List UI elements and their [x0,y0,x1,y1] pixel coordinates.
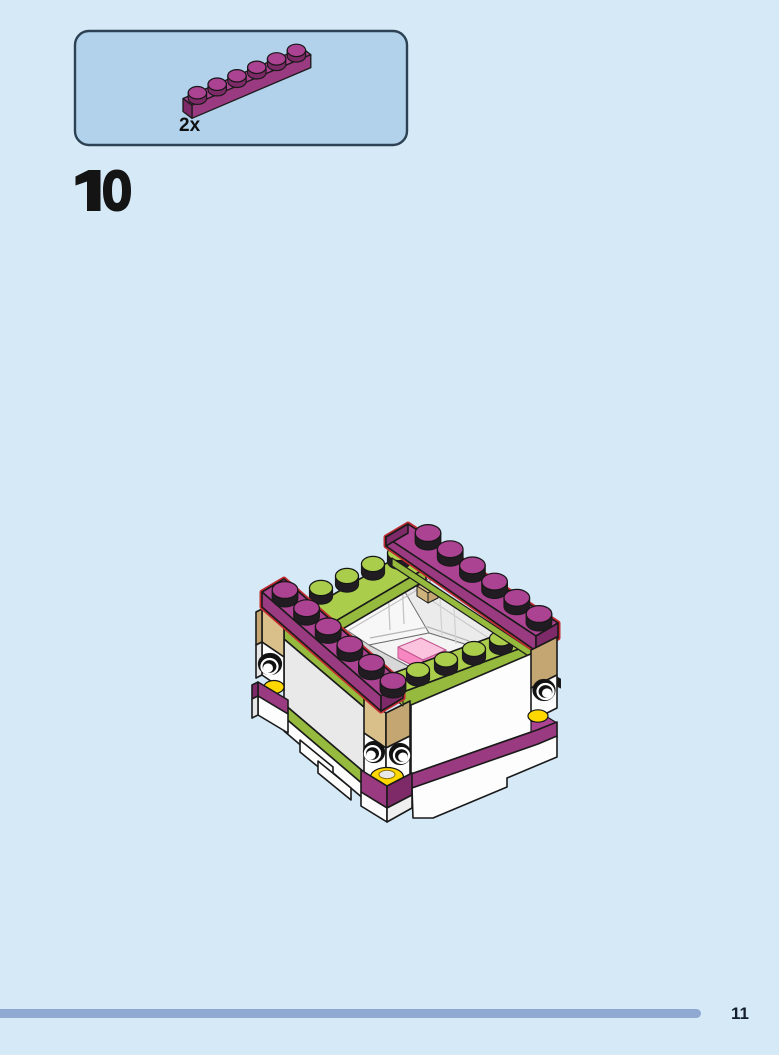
svg-text:11: 11 [731,1004,749,1023]
svg-text:2x: 2x [179,115,201,136]
